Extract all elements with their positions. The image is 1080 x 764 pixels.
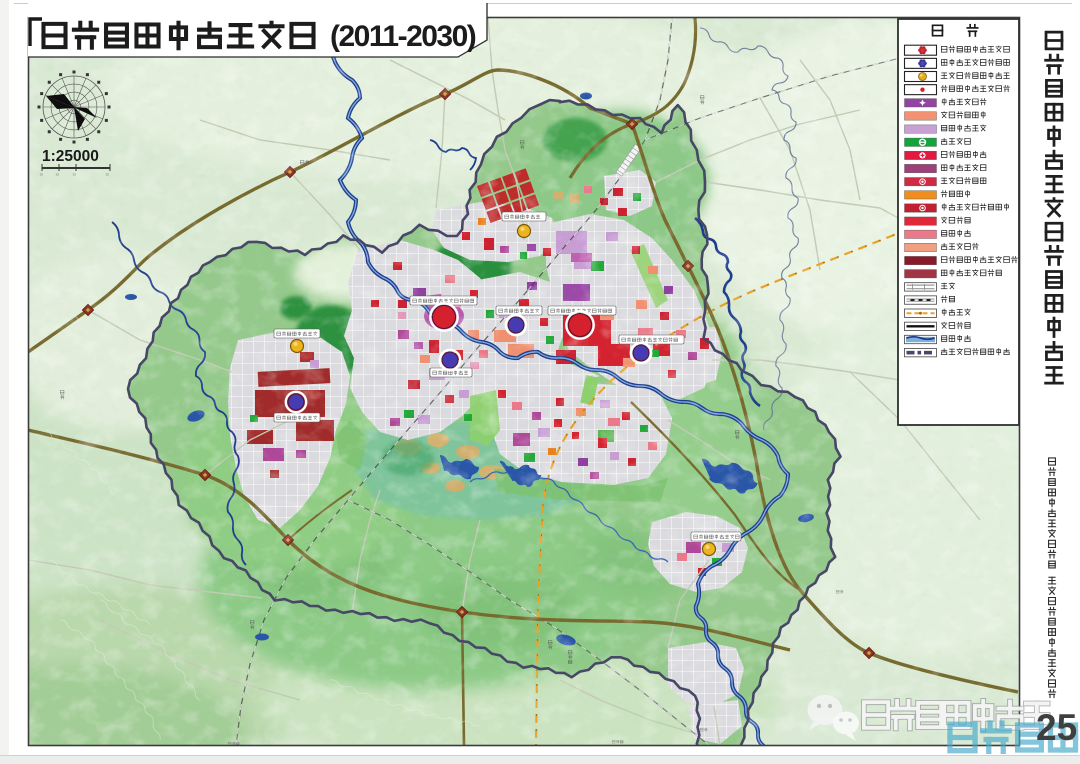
svg-text:1:25000: 1:25000: [42, 148, 99, 165]
svg-text:(2011-2030): (2011-2030): [330, 20, 476, 53]
svg-text:25: 25: [1036, 707, 1077, 748]
